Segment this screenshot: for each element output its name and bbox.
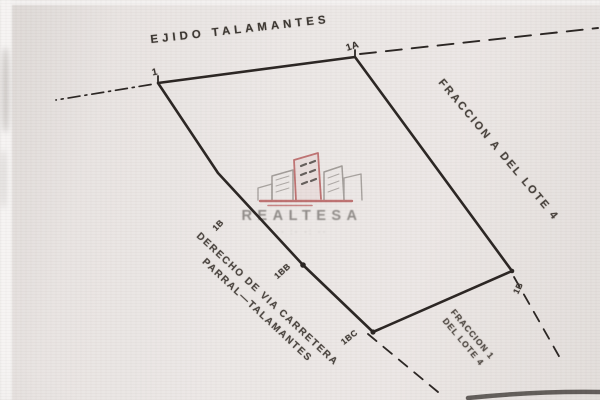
vertex-marker xyxy=(510,269,515,274)
vertex-marker xyxy=(370,329,375,334)
scanned-survey-sketch: REALTESA ·· ː· ·ː ·· EJIDO TALAMANTES 1 xyxy=(0,0,600,400)
boundary-dashed-top-right xyxy=(360,28,598,54)
scan-page-edge xyxy=(468,392,600,398)
boundary-dashed-bottom xyxy=(368,334,438,392)
boundary-dashdot-left xyxy=(56,85,151,101)
vertex-marker xyxy=(300,262,306,268)
